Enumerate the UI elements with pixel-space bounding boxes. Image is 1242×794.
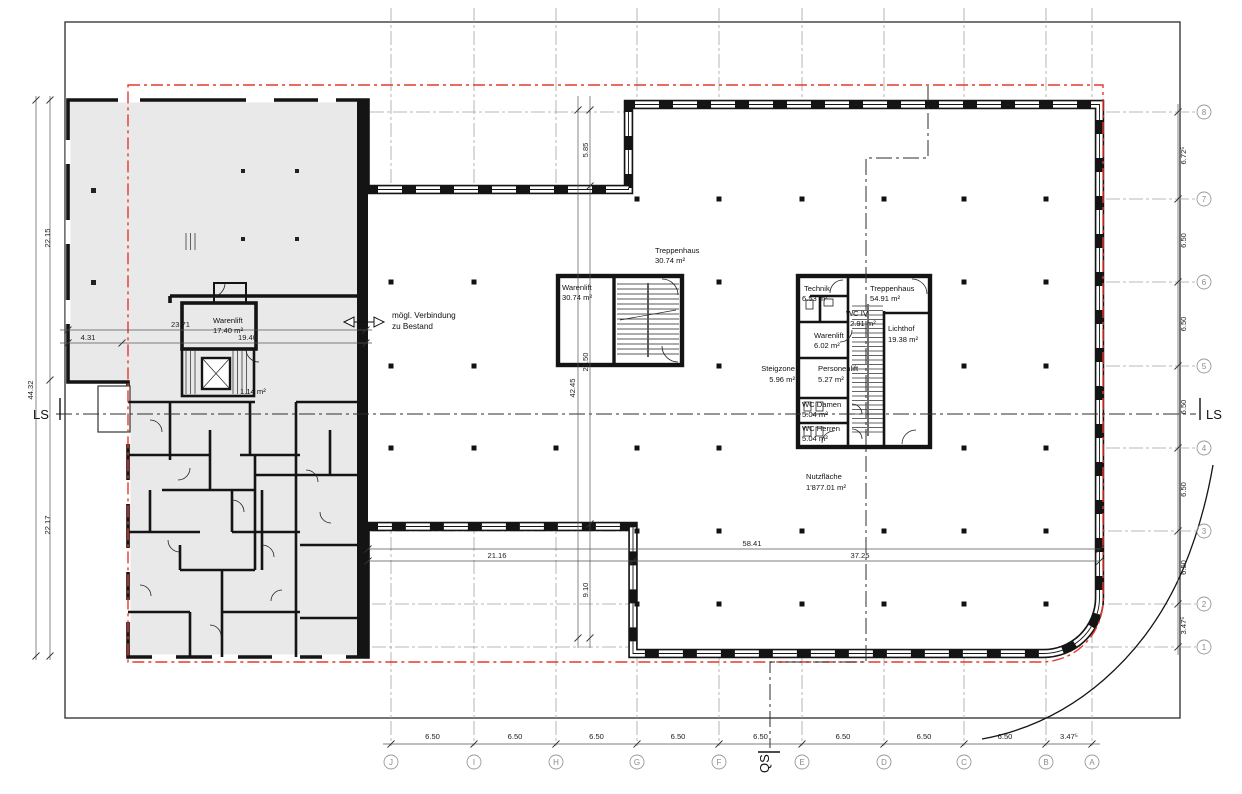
structural-column [635,529,640,534]
party-wall [357,100,369,657]
room-area: 30.74 m² [562,293,592,302]
bottom-chain-dim: 6.50 [425,732,440,741]
ls-left-label: LS [33,407,49,422]
column-bubble-label: F [717,758,722,767]
column-bubble-label: D [881,758,887,767]
structural-column [962,364,967,369]
structural-column [635,197,640,202]
structural-column [1044,446,1049,451]
new-building [368,105,1100,654]
bottom-chain-dim: 6.50 [671,732,686,741]
structural-column [962,280,967,285]
qs-label: QS [757,754,772,773]
column-bubble-label: H [553,758,559,767]
structural-column [1044,280,1049,285]
structural-column [472,280,477,285]
column-bubble-label: G [634,758,640,767]
structural-column [882,197,887,202]
room-area: 17.40 m² [213,326,243,335]
structural-column [717,364,722,369]
structural-column [962,529,967,534]
room-area: 19.38 m² [888,335,918,344]
structural-column [800,602,805,607]
room-label: Warenlift [814,331,845,340]
bottom-chain-dim: 6.50 [589,732,604,741]
dim-2750: 27.50 [581,352,590,371]
bottom-chain-dim: 3.47⁵ [1060,732,1078,741]
column-bubble-label: B [1043,758,1048,767]
structural-column [389,446,394,451]
row-bubble-label: 4 [1202,444,1207,453]
room-label: WC Damen [802,400,841,409]
room-label: WC IV [846,309,869,318]
row-bubble-label: 2 [1202,600,1207,609]
ls-right-label: LS [1206,407,1222,422]
dim-4432: 44.32 [26,380,35,399]
bottom-chain-dim: 6.50 [508,732,523,741]
row-bubble-label: 7 [1202,195,1207,204]
nutzflaeche-label: Nutzfläche [806,472,842,481]
structural-column [554,446,559,451]
structural-column [717,280,722,285]
room-area: 6.02 m² [814,341,840,350]
room-label: Steigzone [761,364,795,373]
dim-910: 9.10 [581,583,590,598]
room-label: Lichthof [888,324,915,333]
structural-column [389,280,394,285]
exterior-bay [98,386,130,432]
floor-plan-drawing: Treppenhaus 30.74 m² Warenlift 30.74 m² [0,0,1242,794]
dim-2215: 22.15 [43,228,52,247]
structural-column [472,364,477,369]
structural-column [962,446,967,451]
column-bubble-label: A [1089,758,1095,767]
dim-3725: 37.25 [850,551,869,560]
right-chain-dim: 6.72⁵ [1179,147,1188,165]
column-bubble-label: I [473,758,475,767]
room-area: 2.91 m² [850,319,876,328]
room-area: 5.27 m² [818,375,844,384]
structural-column [882,529,887,534]
structural-column [1044,602,1049,607]
room-area-small: 1.14 m² [240,387,266,396]
bottom-chain-dim: 6.50 [836,732,851,741]
structural-column [472,446,477,451]
floor-plan-sheet: Treppenhaus 30.74 m² Warenlift 30.74 m² [0,0,1242,794]
room-area: 54.91 m² [870,294,900,303]
nutzflaeche-area: 1'877.01 m² [806,483,846,492]
row-bubble-label: 5 [1202,362,1207,371]
verbindung-text-2: zu Bestand [392,322,433,331]
structural-column [717,602,722,607]
dim-5841: 58.41 [742,539,761,548]
row-bubble-label: 8 [1202,108,1207,117]
structural-column [800,197,805,202]
structural-column [389,364,394,369]
dim-2371: 23.71 [171,320,190,329]
structural-column [800,529,805,534]
room-area: 30.74 m² [655,256,685,265]
dim-2116: 21.16 [487,551,506,560]
right-chain-dim: 6.50 [1179,233,1188,248]
room-label: Treppenhaus [870,284,915,293]
dim-431: 4.31 [81,333,96,342]
structural-column [1044,529,1049,534]
right-chain-dim: 3.47⁵ [1179,617,1188,635]
room-label: Warenlift [562,283,593,292]
right-chain-dim: 6.50 [1179,482,1188,497]
room-area: 6.53 m² [802,294,828,303]
column-bubble-label: E [799,758,804,767]
dim-4245: 42.45 [568,378,577,397]
structural-column [882,602,887,607]
structural-column [1044,197,1049,202]
row-bubble-label: 6 [1202,278,1207,287]
room-label: WC Herren [802,424,840,433]
right-chain-dim: 6.50 [1179,317,1188,332]
column-bubble-label: C [961,758,967,767]
room-label: Personenlift [818,364,859,373]
structural-column [635,446,640,451]
structural-column [1044,364,1049,369]
room-area: 5.04 m² [802,434,828,443]
room-label: Treppenhaus [655,246,700,255]
left-dimension-chain: 22.15 44.32 22.17 [26,96,52,660]
bottom-chain-dim: 6.50 [917,732,932,741]
existing-building [68,100,369,657]
dim-2217: 22.17 [43,515,52,534]
structural-column [635,602,640,607]
structural-column [717,197,722,202]
structural-column [962,197,967,202]
dim-585: 5.85 [581,143,590,158]
bottom-chain-dim: 6.50 [998,732,1013,741]
row-bubble-label: 3 [1202,527,1207,536]
structural-column [717,446,722,451]
structural-column [962,602,967,607]
column-bubble-label: J [389,758,393,767]
row-bubble-label: 1 [1202,643,1207,652]
structural-column [717,529,722,534]
verbindung-text-1: mögl. Verbindung [392,311,456,320]
room-label: Technik [804,284,830,293]
right-chain-dim: 6.50 [1179,400,1188,415]
room-label: Warenlift [213,316,244,325]
right-chain-dim: 6.50 [1179,560,1188,575]
room-area: 5.96 m² [769,375,795,384]
bottom-chain-dim: 6.50 [753,732,768,741]
